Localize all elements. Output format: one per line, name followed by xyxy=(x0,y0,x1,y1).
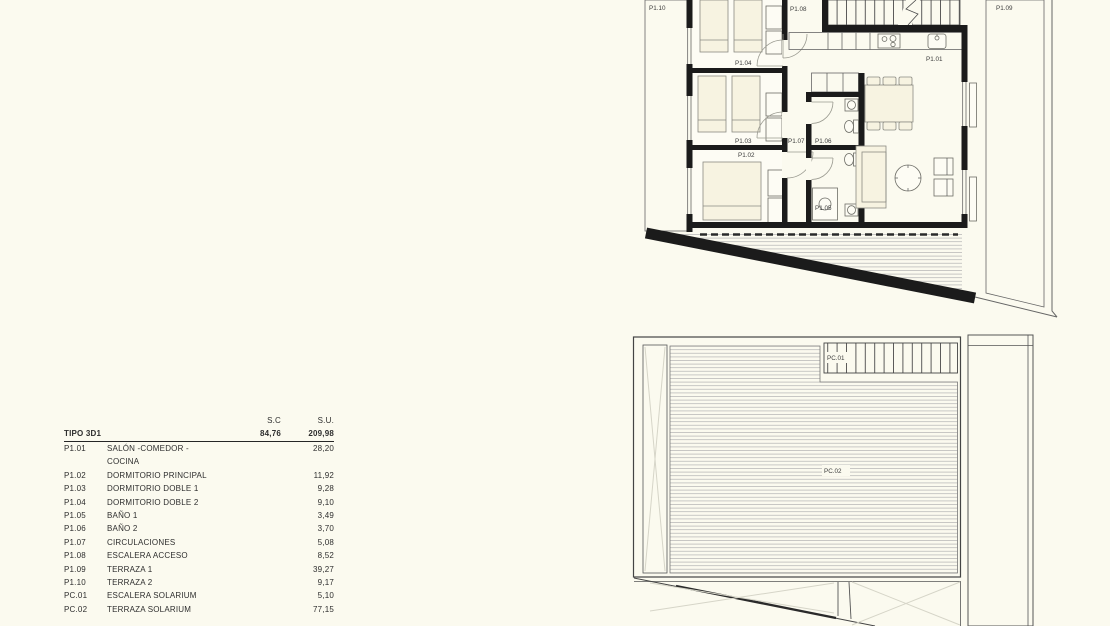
room-area-su: 9,10 xyxy=(281,496,334,509)
room-name: TERRAZA SOLARIUM xyxy=(107,603,217,616)
room-label: P1.10 xyxy=(649,5,666,12)
table-row: P1.06 BAÑO 2 3,70 xyxy=(64,522,334,535)
room-code: P1.02 xyxy=(64,469,107,482)
room-code: P1.01 xyxy=(64,442,107,469)
room-name: TERRAZA 1 xyxy=(107,563,217,576)
type-su-value: 209,98 xyxy=(281,427,334,441)
terrace-p109 xyxy=(970,0,1058,317)
room-name: ESCALERA SOLARIUM xyxy=(107,589,217,602)
room-area-su: 77,15 xyxy=(281,603,334,616)
room-code: P1.08 xyxy=(64,549,107,562)
room-name: TERRAZA 2 xyxy=(107,576,217,589)
table-row: PC.01 ESCALERA SOLARIUM 5,10 xyxy=(64,589,334,602)
hob-icon xyxy=(878,34,900,48)
bath2-fixtures xyxy=(812,99,859,133)
left-wall-windows xyxy=(687,28,693,214)
header-su: S.U. xyxy=(281,415,334,427)
room-area-su: 3,49 xyxy=(281,509,334,522)
upper-floor-plan: P1.10 P1.08 P1.09 P1.04 P1.01 P1.03 P1.0… xyxy=(645,0,1057,317)
room-label: P1.02 xyxy=(738,152,755,159)
room-code: PC.02 xyxy=(64,603,107,616)
coffee-table xyxy=(895,165,921,191)
table-row: P1.04 DORMITORIO DOBLE 2 9,10 xyxy=(64,496,334,509)
right-band xyxy=(968,335,1033,626)
table-row: P1.05 BAÑO 1 3,49 xyxy=(64,509,334,522)
room-name: BAÑO 2 xyxy=(107,522,217,535)
room-name: DORMITORIO PRINCIPAL xyxy=(107,469,217,482)
room-name: DORMITORIO DOBLE 2 xyxy=(107,496,217,509)
table-row: P1.01 SALÓN -COMEDOR - COCINA 28,20 xyxy=(64,442,334,469)
sofa xyxy=(856,146,886,208)
room-area-su: 9,17 xyxy=(281,576,334,589)
dining-table xyxy=(865,77,913,130)
room-area-su: 5,10 xyxy=(281,589,334,602)
room-label: P1.08 xyxy=(790,6,807,13)
south-facade xyxy=(646,222,975,298)
room-code: P1.04 xyxy=(64,496,107,509)
room-label: P1.04 xyxy=(735,60,752,67)
type-row: TIPO 3D1 84,76 209,98 xyxy=(64,427,334,442)
type-sc-value: 84,76 xyxy=(217,427,281,441)
armchairs xyxy=(934,158,953,196)
table-row: P1.09 TERRAZA 1 39,27 xyxy=(64,563,334,576)
room-name: SALÓN -COMEDOR - COCINA xyxy=(107,442,217,469)
table-row: P1.10 TERRAZA 2 9,17 xyxy=(64,576,334,589)
room-area-su: 5,08 xyxy=(281,536,334,549)
room-code: P1.03 xyxy=(64,482,107,495)
room-label: P1.06 xyxy=(815,138,832,145)
room-code: P1.09 xyxy=(64,563,107,576)
room-code: P1.05 xyxy=(64,509,107,522)
lower-sloped-structure xyxy=(634,578,961,626)
room-area-su: 9,28 xyxy=(281,482,334,495)
room-label: P1.01 xyxy=(926,56,943,63)
room-area-su: 11,92 xyxy=(281,469,334,482)
roof-x-strip xyxy=(643,345,667,573)
kitchen xyxy=(789,33,967,50)
table-row: P1.02 DORMITORIO PRINCIPAL 11,92 xyxy=(64,469,334,482)
room-label: P1.03 xyxy=(735,138,752,145)
room-label: P1.05 xyxy=(815,205,832,212)
room-name: ESCALERA ACCESO xyxy=(107,549,217,562)
solarium-plan: PC.02 PC.01 xyxy=(634,335,1034,626)
table-row: PC.02 TERRAZA SOLARIUM 77,15 xyxy=(64,603,334,616)
room-area-su: 8,52 xyxy=(281,549,334,562)
room-code: P1.10 xyxy=(64,576,107,589)
sink-icon xyxy=(928,34,946,49)
area-table: S.C S.U. TIPO 3D1 84,76 209,98 P1.01 SAL… xyxy=(64,415,334,616)
terrace-pc02: PC.02 xyxy=(670,346,958,573)
room-label: P1.07 xyxy=(788,138,805,145)
table-row: P1.08 ESCALERA ACCESO 8,52 xyxy=(64,549,334,562)
table-row: P1.03 DORMITORIO DOBLE 1 9,28 xyxy=(64,482,334,495)
bedrooms xyxy=(692,0,813,228)
room-area-su: 28,20 xyxy=(281,442,334,469)
area-table-header: S.C S.U. xyxy=(64,415,334,427)
terrace-p110 xyxy=(645,0,693,232)
table-row: P1.07 CIRCULACIONES 5,08 xyxy=(64,536,334,549)
room-code: P1.07 xyxy=(64,536,107,549)
room-name: BAÑO 1 xyxy=(107,509,217,522)
living-dining xyxy=(856,25,968,228)
room-area-su: 39,27 xyxy=(281,563,334,576)
room-code: P1.06 xyxy=(64,522,107,535)
type-label: TIPO 3D1 xyxy=(64,427,217,441)
header-sc: S.C xyxy=(217,415,281,427)
area-table-rows: P1.01 SALÓN -COMEDOR - COCINA 28,20 P1.0… xyxy=(64,442,334,616)
room-name: DORMITORIO DOBLE 1 xyxy=(107,482,217,495)
room-label: PC.01 xyxy=(827,355,845,362)
room-label: PC.02 xyxy=(824,468,842,475)
room-area-su: 3,70 xyxy=(281,522,334,535)
solarium-stairs-pc01: PC.01 xyxy=(824,343,958,373)
room-label: P1.09 xyxy=(996,5,1013,12)
room-code: PC.01 xyxy=(64,589,107,602)
room-name: CIRCULACIONES xyxy=(107,536,217,549)
